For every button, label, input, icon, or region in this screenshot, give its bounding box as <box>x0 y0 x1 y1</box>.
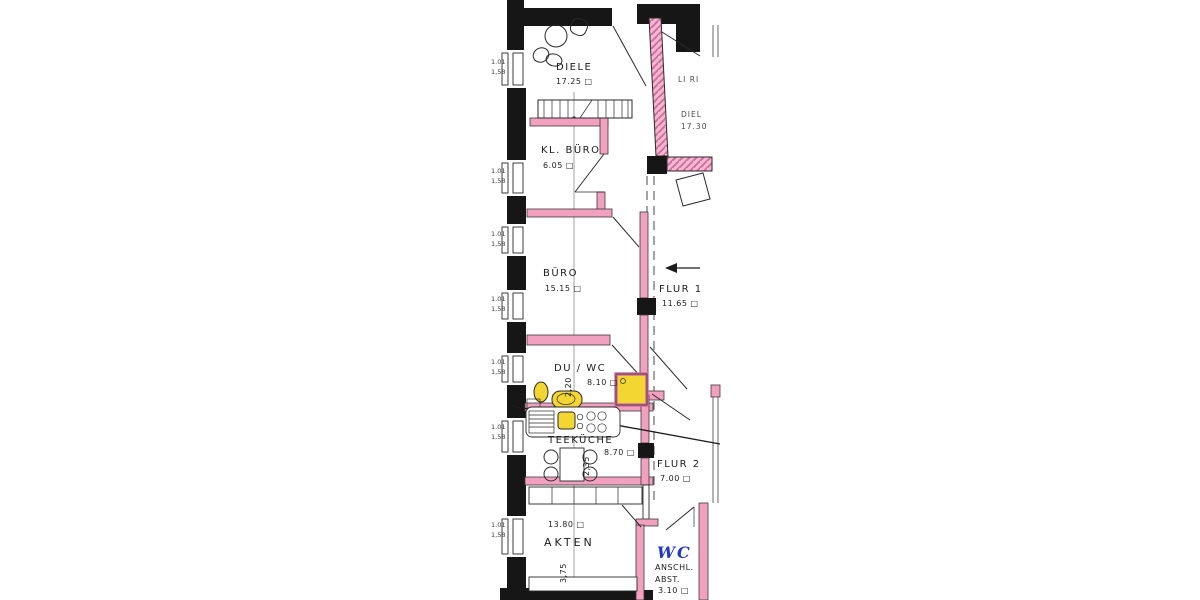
svg-text:1,58: 1,58 <box>491 240 505 248</box>
akten-shelf <box>529 577 637 591</box>
window-dimension-labels: 1.01 1,58 1.01 1,58 1.01 1,58 1.01 1,58 … <box>491 58 505 539</box>
kitchen-sink <box>558 412 575 429</box>
svg-text:1.01: 1.01 <box>491 295 505 303</box>
room-label-teekueche: TEEKÜCHE <box>547 433 613 446</box>
dim-akten: 3,75 <box>559 563 568 583</box>
chair <box>544 450 558 464</box>
outer-wall-top <box>507 4 700 52</box>
shower-tray <box>616 374 647 405</box>
room-area-du-wc: 8.10 □ <box>587 378 618 387</box>
table <box>560 448 584 481</box>
room-label-flur2: FLUR 2 <box>657 459 701 470</box>
svg-text:1,58: 1,58 <box>491 68 505 76</box>
dim-du-wc: 2,20 <box>564 377 573 397</box>
room-area-teekueche: 8.70 □ <box>604 448 635 457</box>
room-label-du-wc: DU / WC <box>554 363 606 374</box>
neighbor-room-label: DIEL <box>681 110 702 119</box>
room-label-akten: AKTEN <box>544 536 595 549</box>
svg-text:1.01: 1.01 <box>491 58 505 66</box>
svg-text:1.01: 1.01 <box>491 521 505 529</box>
room-area-buero: 15.15 □ <box>545 284 582 293</box>
floor-plan-drawing: 1.01 1,58 1.01 1,58 1.01 1,58 1.01 1,58 … <box>0 0 1200 600</box>
room-label-kl-buero: KL. BÜRO <box>541 143 601 156</box>
svg-text:1.01: 1.01 <box>491 167 505 175</box>
room-area-diele: 17.25 □ <box>556 77 593 86</box>
neighbor-door-leaf <box>676 173 710 206</box>
svg-text:1,58: 1,58 <box>491 368 505 376</box>
svg-text:1,58: 1,58 <box>491 305 505 313</box>
room-area-flur1: 11.65 □ <box>662 299 699 308</box>
room-label-buero: BÜRO <box>543 266 578 279</box>
room-label-wc-blue: WC <box>657 543 692 562</box>
svg-text:1.01: 1.01 <box>491 358 505 366</box>
kitchen-counter <box>526 407 620 437</box>
room-area-kl-buero: 6.05 □ <box>543 161 574 170</box>
neighbor-room-area: 17.30 <box>681 122 707 131</box>
svg-text:1.01: 1.01 <box>491 423 505 431</box>
room-label-flur1: FLUR 1 <box>659 284 703 295</box>
svg-text:1.01: 1.01 <box>491 230 505 238</box>
svg-text:1,58: 1,58 <box>491 433 505 441</box>
svg-text:1,58: 1,58 <box>491 531 505 539</box>
room-label-diele: DIELE <box>556 62 592 73</box>
outer-wall-bottom <box>505 590 653 600</box>
room-area-flur2: 7.00 □ <box>660 474 691 483</box>
room-labels: DIELE 17.25 □ KL. BÜRO 6.05 □ BÜRO 15.15… <box>541 62 707 595</box>
svg-text:1,58: 1,58 <box>491 177 505 185</box>
radiator-band <box>538 100 632 118</box>
room-area-wc-anschl: 3.10 □ <box>658 586 689 595</box>
entrance-arrow <box>665 263 700 273</box>
room-area-akten: 13.80 □ <box>548 520 585 529</box>
dim-teekueche: 2,35 <box>582 456 591 476</box>
neighbor-label-li-ri: LI RI <box>678 75 699 84</box>
room-label-anschl: ANSCHL. <box>655 563 694 572</box>
floor-plan-page: 1.01 1,58 1.01 1,58 1.01 1,58 1.01 1,58 … <box>0 0 1200 600</box>
room-label-abst: ABST. <box>655 575 680 584</box>
